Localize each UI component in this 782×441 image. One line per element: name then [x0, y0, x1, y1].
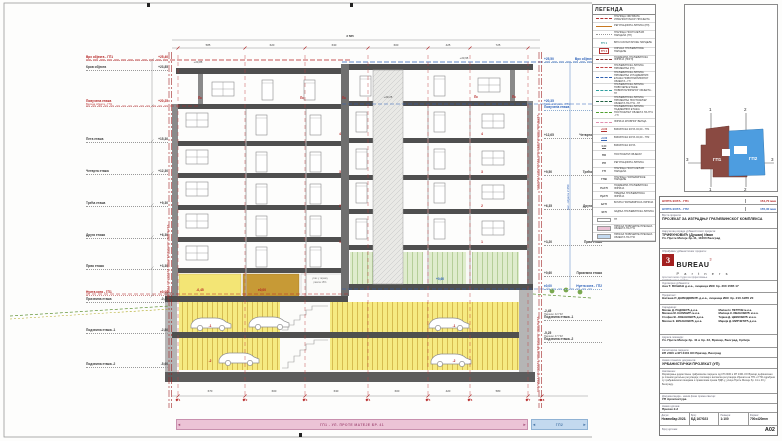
project-type: Врста пројекта: ПРОЈЕКАТ ЗА ИЗГРАДЊУ ГРА… [660, 213, 777, 229]
drawing-mark: Пс [512, 95, 516, 99]
axis-marker: 5 [426, 398, 431, 402]
left-facade-wall [172, 104, 178, 296]
drawing-mark: рампа 15% [314, 281, 327, 284]
responsible-planner: Одговорни урбаниста: Ана Т. БОШАН д.и.а.… [660, 281, 777, 293]
keyplan: ГП1 ГП2 1 2 1 2 3 3 [684, 4, 778, 192]
axis-marker: 3 [303, 398, 308, 402]
legend-row: Приказ површине пресека објекта на ГП1 [593, 225, 655, 233]
legend-symbol [596, 18, 612, 19]
legend-label: Грађевинска линија надземних етажа посто… [614, 106, 654, 117]
floor-label-row: Повучена етажа +20,25 Висина објекта - Г… [86, 100, 168, 107]
floor-label-row: Трећа етажа +9,30 [86, 202, 168, 207]
legend-row: ПрГЛ Предња грађевинска линија [593, 192, 655, 200]
legend-row: +0,00 Висинска кота ±0,00 - ГП2 [593, 135, 655, 143]
floor-label-row: Нулта кота - ГП1 ±0,00 [86, 291, 168, 296]
legend-label: Број катастарске парцеле [614, 42, 652, 45]
floor-label-row: Прва етажа +3,30 [86, 265, 168, 270]
floor-label-row: Подземна етажа -1 -2,45 Паркинг 42 ПМ [544, 310, 602, 321]
firm-name: BUREAU [677, 262, 710, 269]
legend-symbol [596, 112, 612, 113]
ground-room-ochre [243, 274, 299, 296]
floor-label-row: Приземна етажа +0,60 [544, 272, 602, 277]
legend-label: Задња грађевинска линија [614, 211, 654, 214]
drawing-mark: Пс [474, 95, 478, 99]
legend-symbol: ГПВ [601, 177, 607, 181]
legend-label: Висинска кота ±0,00 - ГП2 [614, 137, 649, 140]
legend-row: ГП [593, 217, 655, 225]
legend-label: Подземна грађевинска линија [614, 185, 654, 191]
planning-document: Назив планског документа: УРБАНИСТИЧКИ П… [660, 358, 777, 369]
floor-label-row: Пета етажа +15,30 [86, 138, 168, 143]
legend-label: Грађевинска линија повучене етаже новопл… [614, 84, 654, 95]
phase: Документација - назив фазе према свесци:… [660, 394, 777, 404]
ground-slab-left [165, 296, 348, 302]
legend-label: Висинска кота [614, 145, 635, 148]
axis-marker: 2 [243, 398, 248, 402]
drawing-mark: -2 [209, 359, 212, 363]
legend-label: Предња грађевинска линија [614, 193, 654, 199]
collaborator-row: Милош К. ВУКАНОВИЋ д.и.а. Марија Д. МИРЧ… [662, 320, 775, 324]
legend-symbol: РЛ [602, 161, 606, 165]
client: Наручилац израде урбанистичког пројекта:… [660, 229, 777, 249]
svg-text:1: 1 [709, 187, 712, 191]
dimension-value: 630 [332, 43, 337, 47]
legend-items: Граница обухвата урбанистичког пројекта … [593, 15, 655, 241]
legend-symbol: ГП 1 [601, 41, 607, 45]
legend-row: 0,00 Висинска кота [593, 143, 655, 151]
meta-format: Формат: 700x420mm [748, 413, 778, 425]
legend-label: Граница обухвата урбанистичког пројекта [614, 16, 654, 22]
meta-date: Датум: Новембар 2023. [660, 413, 689, 425]
legend-symbol [596, 90, 612, 91]
legend-label: Подземна грађевинска линија (ПоГЛ) [614, 57, 654, 63]
legend-title: ЛЕГЕНДА [593, 5, 655, 15]
dimension-value: 600 [394, 43, 399, 47]
legend-row: БГЛ Бочна грађевинска линија [593, 200, 655, 208]
dimension-total: 3 585 [346, 34, 354, 38]
drawing-mark: -2 [453, 359, 456, 363]
legend-symbol [597, 226, 611, 231]
legend-row: ГП 1 Ознака грађевинске парцеле [593, 48, 655, 56]
legend-symbol [597, 234, 611, 239]
legend-label: Граница грађевинске парцеле [614, 177, 654, 183]
band-arrow-right-icon: ► [583, 423, 587, 427]
legend-label: ГП [614, 219, 617, 222]
collaborators: Сарадници: Милан Д. РАДОВИЋ д.и.а. Милан… [660, 305, 777, 335]
floor-label-row: Подземна етажа -2 -5,60 [86, 363, 168, 368]
boundary-label-left: ГРАНИЦА ОБУХВАТА УРБАНИСТИЧКОГ ПРОЈЕКТА [166, 224, 170, 300]
bureau-logo-icon: 3 [662, 254, 674, 266]
dimension-value: 600 [272, 389, 277, 393]
parcel-band-gp1: ◄ ГП1 - УЛ. ПРОТЕ МАТЕЈЕ БР. 41 ► [176, 419, 528, 430]
roof-slab-left [176, 68, 344, 74]
dimension-value: 630 [334, 389, 339, 393]
foundation-slab [165, 372, 535, 382]
legend-symbol [596, 77, 612, 78]
legend-symbol [596, 59, 612, 60]
roof-slab-right [342, 64, 533, 70]
drawing-mark: -0,45 [196, 288, 203, 292]
svg-text:2: 2 [744, 187, 747, 191]
legend-label: Приказ површине пресека објекта на ГП2 [614, 234, 654, 240]
cadastre-parcels: Катастарске парцеле: КП 2400 и КП 2401 К… [660, 348, 777, 358]
legend-row: ГПВ Граница грађевинске парцеле [593, 176, 655, 184]
drawing-mark: 1 [339, 240, 341, 244]
legend-row: ПоГЛ Подземна грађевинска линија [593, 184, 655, 192]
legend-label: Приказ површине пресека објекта на ГП1 [614, 226, 654, 232]
legend-symbol [596, 34, 612, 35]
keyplan-diagram: ГП1 ГП2 1 2 1 2 3 3 [685, 5, 777, 191]
elevator-core [373, 70, 403, 284]
legend-symbol: ПО [602, 153, 606, 157]
legend-row: Подземна грађевинска линија (ПоГЛ) [593, 56, 655, 64]
legend-symbol [596, 67, 612, 68]
drawing-mark: улаз у гаражу [312, 277, 328, 280]
dimension-value: 600 [395, 389, 400, 393]
dimension-value: 725 [496, 43, 501, 47]
boundary-label-right-2: ГРАНИЦА ОБУХВАТА УРБАНИСТИЧКОГ ПРОЈЕКТА [536, 316, 540, 392]
legend-symbol: ПрГЛ [600, 194, 607, 198]
legend-row: Линија кровног венца [593, 119, 655, 127]
drawing-mark: +0,60 [436, 277, 444, 281]
legend-symbol: +0,00 [601, 128, 607, 132]
floor-label-row: Врх објекта - ГП1 +25,40 [86, 56, 168, 61]
legend-row: ПО Постојећи објекат [593, 151, 655, 159]
axis-marker: 4 [366, 398, 371, 402]
floor-label-row: Подземна етажа -1 -2,80 [86, 329, 168, 334]
legend-label: Постојећи објекат [614, 154, 642, 157]
legend-row: Грађевинска линија надземних етажа посто… [593, 106, 655, 118]
legend-row: Граница постојећих парцела (ГП) [593, 31, 655, 39]
drawing-name: Назив цртежа: Пресек 2-2 [660, 404, 777, 413]
axis-marker: 1 [176, 398, 181, 402]
drawing-sheet: Врх објекта - ГП1 +25,40 Кров објекта +2… [0, 0, 782, 441]
drawing-mark: Пс [300, 96, 304, 100]
legend-label: Бочна грађевинска линија [614, 202, 653, 205]
legend-row: Грађевинска линија повучене етаже новопл… [593, 84, 655, 96]
legend-symbol: БГЛ [601, 202, 607, 206]
drawing-mark: Пс [342, 96, 346, 100]
drawing-mark: 1 [481, 240, 483, 244]
keyplan-gp2-label: ГП2 [749, 156, 758, 161]
sheet-number: Број цртежа: А02 [660, 426, 777, 433]
axis-marker: 7 [526, 398, 531, 402]
floor-label-row: Друга етажа +6,30 [86, 234, 168, 239]
dimension-value: 420 [446, 389, 451, 393]
axis-marker: 6 [468, 398, 473, 402]
bush [578, 290, 583, 295]
legend-label: Грађевинска линија приземља и надземних … [614, 72, 654, 83]
terrain-line-right [533, 294, 592, 299]
drawing-mark: -1 [453, 324, 456, 328]
meta-scale: Размера: 1:100 [718, 413, 748, 425]
legend-symbol [596, 26, 612, 27]
parcel-band-gp2: ◄ ГП2 ► [531, 419, 588, 430]
drawing-mark: +20,25 [384, 95, 393, 99]
legend-row: Приказ површине пресека објекта на ГП2 [593, 233, 655, 241]
legend: ЛЕГЕНДА Граница обухвата урбанистичког п… [592, 4, 656, 242]
dimension-value: 670 [208, 389, 213, 393]
keyplan-gp1-label: ГП1 [713, 157, 722, 162]
terrain-line-left [10, 306, 170, 316]
band-arrow-right-icon: ► [523, 423, 527, 427]
svg-text:1: 1 [709, 107, 712, 112]
legend-label: Граница постојећих парцела (ГП) [614, 32, 654, 38]
zero-level-row-gp2: НУЛТА КОТА - ГП2 155,30 мнв [660, 205, 777, 213]
floor-label-row: Кров објекта +23,85 [86, 66, 168, 71]
legend-symbol: ЗГЛ [601, 210, 606, 214]
drawing-mark: 2 [481, 204, 483, 208]
drawing-mark: 3 [481, 170, 483, 174]
dimension-value: 620 [270, 43, 275, 47]
legend-label: Ознака грађевинске парцеле [614, 48, 654, 54]
legend-row: Граница обухвата урбанистичког пројекта [593, 15, 655, 23]
legend-symbol: ПоГЛ [600, 186, 607, 190]
legend-symbol: 0,00 [602, 145, 607, 149]
legend-label: Регулациона линија (РЛ) [614, 25, 649, 28]
drawing-mark: 4 [481, 132, 483, 136]
legend-symbol: +0,00 [601, 137, 607, 141]
parcel-band-gp1-label: ГП1 - УЛ. ПРОТЕ МАТЕЈЕ БР. 41 [181, 423, 522, 427]
dimension-value: 580 [496, 389, 501, 393]
drawing-mark: 4 [339, 132, 341, 136]
svg-text:2: 2 [744, 107, 747, 112]
drawing-meta: Датум: Новембар 2023. Број: БД 167/023 Р… [660, 413, 777, 426]
location: Адреса локације: Ул. Проте Матеје бр. 41… [660, 335, 777, 348]
parcel-band-gp2-label: ГП2 [536, 423, 582, 427]
legend-label: Граница постојећих парцела [614, 168, 654, 174]
zero-level-row-gp1: НУЛТА КОТА - ГП1 154,70 мнв [660, 197, 777, 205]
legend-label: Висинска кота ±0,00 - ГП1 [614, 129, 649, 132]
designer: Пројектант: Наташа Р. ДАВИДОВИЋ д.и.а., … [660, 293, 777, 305]
dimension-value: 425 [446, 43, 451, 47]
legend-label: Грађевинска линија приземља (ГЛ) [614, 65, 654, 71]
legend-symbol [596, 122, 612, 123]
drawing-mark: -1 [209, 324, 212, 328]
boundary-label-right-1: ГРАНИЦА ОБУХВАТА УРБАНИСТИЧКОГ ПРОЈЕКТА [536, 114, 540, 190]
meta-number: Број: БД 167/023 [689, 413, 719, 425]
floor-label-row: Нулта кота - ГП2 ±0,00 [544, 285, 602, 290]
legend-label: Регулациона линија [614, 162, 644, 165]
drawing-mark: 3 [339, 170, 341, 174]
title-block: НУЛТА КОТА - ГП1 154,70 мнв НУЛТА КОТА -… [659, 196, 778, 436]
legend-symbol: ГП 1 [599, 48, 609, 54]
svg-text:3: 3 [771, 157, 774, 162]
legend-symbol [596, 101, 612, 102]
legend-row: ЗГЛ Задња грађевинска линија [593, 208, 655, 216]
axis-marker: 8 [540, 398, 545, 402]
drawing-mark: 2 [339, 204, 341, 208]
floor-label-row: Подземна етажа -2 -5,25 Паркинг 47 ПМ [544, 332, 602, 343]
floor-label-row: Четврта етажа +12,30 [86, 170, 168, 175]
svg-text:3: 3 [686, 157, 689, 162]
ground-room-yellow [179, 274, 241, 296]
drawing-mark: ±0,00 [258, 288, 266, 292]
legend-symbol [597, 218, 611, 223]
drawing-mark: +23,95 [460, 56, 469, 60]
drawing-mark: Пс [198, 96, 202, 100]
legend-row: +0,00 Висинска кота ±0,00 - ГП1 [593, 127, 655, 135]
floor-label-row: Приземна етажа -0,45 [86, 298, 168, 303]
drawing-mark: +23,85 [194, 60, 203, 64]
legend-row: ГП Граница постојећих парцела [593, 168, 655, 176]
firm-logo-block: Обрађивач урбанистичког пројекта: 3 BURE… [660, 249, 777, 281]
legend-symbol: ГП [602, 169, 606, 173]
legend-label: Линија кровног венца [614, 121, 646, 124]
notes: Напомена: Формирање јединствене грађевин… [660, 369, 777, 394]
dimension-value: 585 [206, 43, 211, 47]
height-dimension-label: вис. објекта 2 650 [566, 184, 570, 210]
